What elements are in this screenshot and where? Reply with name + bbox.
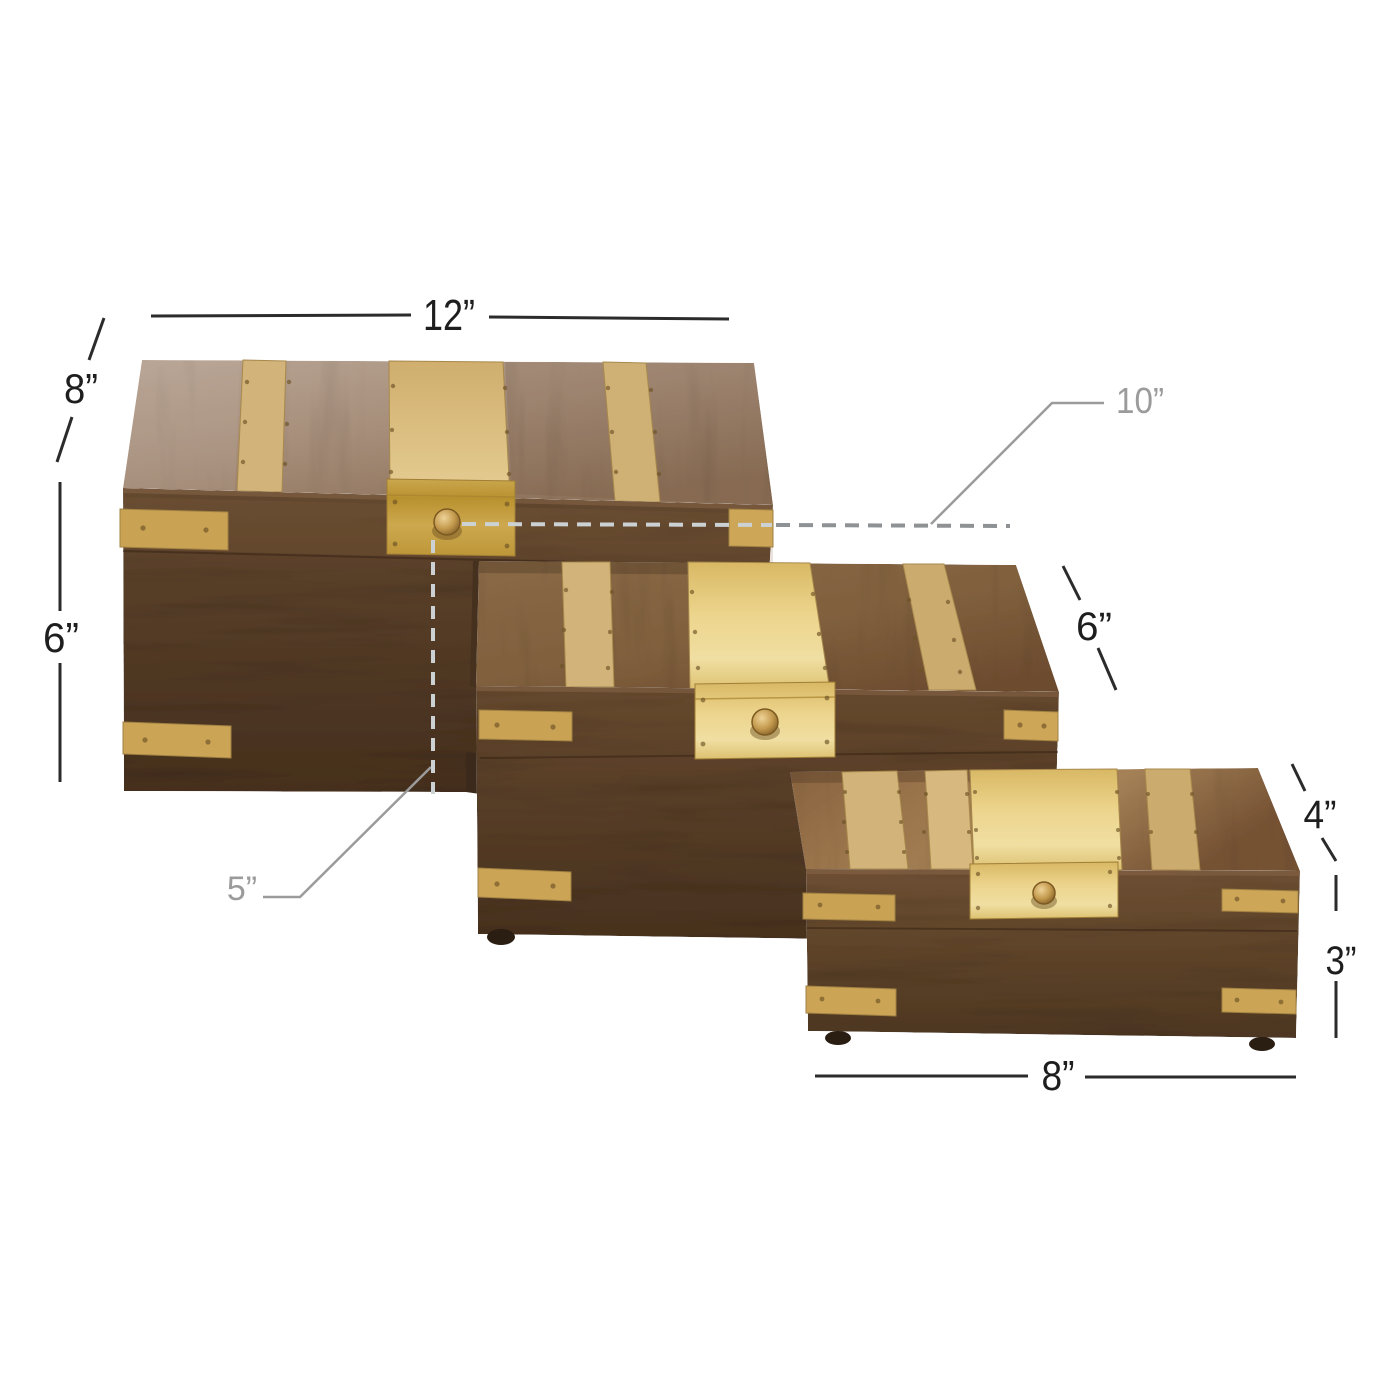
svg-text:8”: 8” xyxy=(64,365,98,412)
svg-text:3”: 3” xyxy=(1326,939,1357,983)
svg-text:5”: 5” xyxy=(227,870,257,908)
svg-text:6”: 6” xyxy=(1076,605,1112,649)
svg-text:6”: 6” xyxy=(43,614,79,661)
svg-text:4”: 4” xyxy=(1304,793,1337,837)
svg-text:12”: 12” xyxy=(423,291,475,340)
svg-text:10”: 10” xyxy=(1116,380,1164,421)
svg-text:8”: 8” xyxy=(1042,1052,1075,1099)
